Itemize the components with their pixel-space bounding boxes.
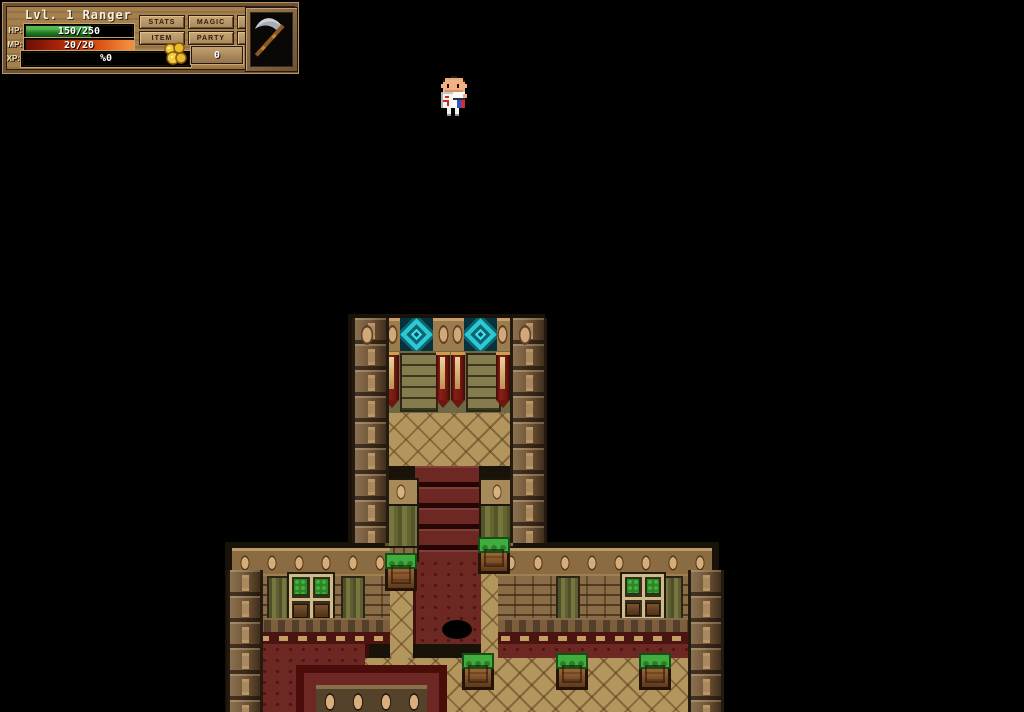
window-plant bbox=[293, 578, 308, 595]
wall-oval-ornament bbox=[496, 322, 509, 347]
window-plant bbox=[626, 578, 640, 594]
player-sprite bbox=[437, 76, 471, 118]
wall-oval-ornament bbox=[437, 322, 450, 347]
wing-pillar-left bbox=[227, 570, 263, 712]
plant-window bbox=[289, 574, 333, 622]
wall-curtain bbox=[267, 576, 291, 620]
party-button[interactable]: PARTY bbox=[188, 31, 234, 45]
scythe-icon bbox=[251, 13, 292, 66]
shelf-panel bbox=[400, 353, 438, 412]
planter bbox=[462, 658, 494, 690]
hp-label: HP: bbox=[4, 26, 22, 35]
wall-curtain bbox=[341, 576, 365, 620]
red-banner bbox=[496, 352, 510, 400]
gold-coins-icon bbox=[161, 42, 189, 68]
window-pot bbox=[646, 603, 660, 616]
wing-pillar-right bbox=[688, 570, 724, 712]
trim-band bbox=[498, 632, 688, 644]
red-banner bbox=[436, 352, 450, 400]
pillar-cap-oval bbox=[359, 322, 375, 348]
hp-value: 150/250 bbox=[25, 25, 133, 38]
xp-label: XP: bbox=[2, 54, 20, 63]
planter bbox=[639, 658, 671, 690]
tower-pillar-left bbox=[352, 318, 389, 543]
ranger-hero-icon bbox=[437, 76, 471, 118]
window-pot bbox=[314, 604, 329, 618]
tower-pillar-right bbox=[510, 318, 547, 543]
staircase bbox=[415, 466, 479, 558]
portal-tile[interactable] bbox=[464, 318, 497, 351]
window-plant bbox=[646, 578, 660, 594]
planter bbox=[556, 658, 588, 690]
weapon-slot-inner bbox=[250, 12, 293, 67]
window-plant bbox=[314, 578, 329, 595]
plant-window bbox=[622, 574, 664, 620]
hud-panel: Lvl. 1 Ranger HP: 150/250 MP: 20/20 XP: … bbox=[0, 0, 301, 76]
planter bbox=[385, 558, 417, 591]
window-pot bbox=[626, 603, 640, 616]
window-pot bbox=[293, 604, 308, 618]
magic-button[interactable]: MAGIC bbox=[188, 15, 234, 29]
wall-oval-ornament bbox=[451, 322, 464, 347]
portal-tile[interactable] bbox=[400, 318, 433, 351]
tower-floor bbox=[383, 413, 510, 466]
game-viewport: Lvl. 1 Ranger HP: 150/250 MP: 20/20 XP: … bbox=[0, 0, 1024, 712]
floor-hole[interactable] bbox=[442, 620, 472, 639]
gate-balustrade bbox=[316, 685, 427, 712]
pillar-cap-oval bbox=[517, 322, 533, 348]
wall-curtain bbox=[556, 576, 580, 620]
trim-band bbox=[257, 632, 390, 644]
character-title: Lvl. 1 Ranger bbox=[25, 8, 132, 22]
mp-label: MP: bbox=[4, 40, 22, 49]
hp-bar: 150/250 bbox=[24, 24, 134, 39]
stats-button[interactable]: STATS bbox=[139, 15, 185, 29]
planter bbox=[478, 542, 510, 574]
weapon-slot[interactable] bbox=[245, 7, 298, 72]
gold-amount-field: 0 bbox=[191, 46, 243, 64]
red-banner bbox=[451, 352, 465, 400]
